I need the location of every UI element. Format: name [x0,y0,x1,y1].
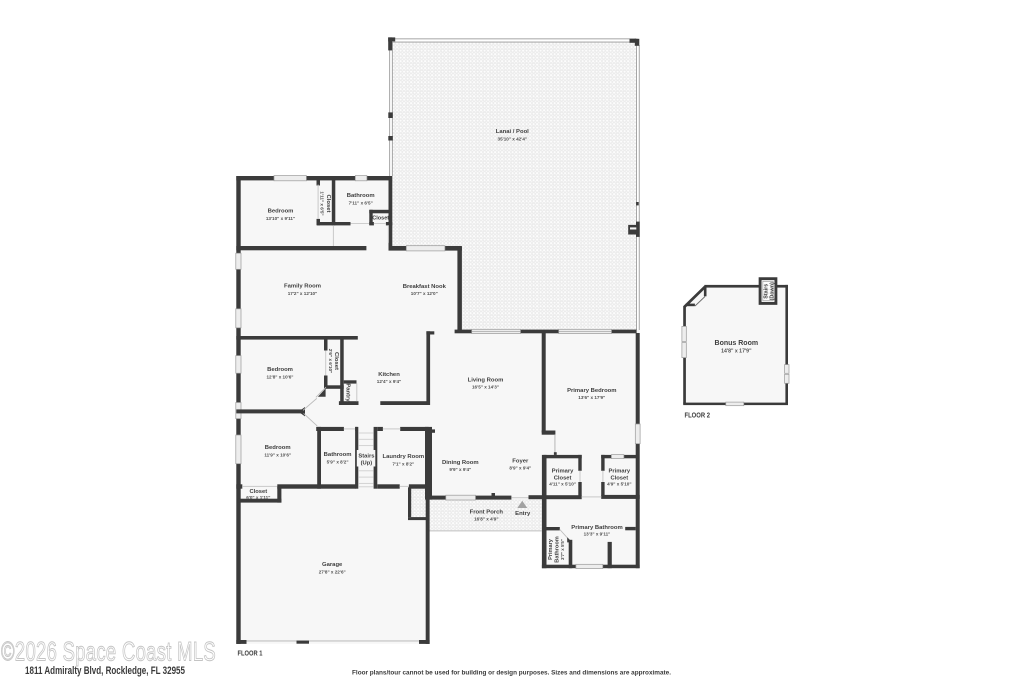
svg-text:Living Room: Living Room [468,377,504,383]
svg-text:Garage: Garage [322,562,343,568]
svg-text:Closet: Closet [610,475,628,481]
svg-text:Floor plans/tour cannot be use: Floor plans/tour cannot be used for buil… [352,670,671,677]
svg-text:17'2" x 12'10": 17'2" x 12'10" [288,291,318,296]
svg-text:7'1" x 8'2": 7'1" x 8'2" [392,461,414,466]
svg-text:Bedroom: Bedroom [267,367,293,373]
svg-text:Kitchen: Kitchen [378,372,400,378]
svg-text:27'8" x 22'6": 27'8" x 22'6" [319,569,346,574]
svg-text:7'11" x 6'5": 7'11" x 6'5" [349,200,373,205]
svg-text:3'7" x 5'5": 3'7" x 5'5" [560,539,565,560]
svg-text:Bedroom: Bedroom [265,445,291,451]
svg-text:Laundry Room: Laundry Room [383,454,425,460]
svg-text:Bathroom: Bathroom [324,452,352,458]
svg-text:Primary: Primary [548,538,554,560]
svg-text:5'9" x 8'2": 5'9" x 8'2" [327,459,349,464]
svg-text:FLOOR 1: FLOOR 1 [238,648,264,657]
svg-text:(Up): (Up) [361,461,373,467]
svg-text:11'9" x 10'6": 11'9" x 10'6" [264,452,291,457]
svg-text:Family Room: Family Room [284,284,321,290]
svg-text:16'5" x 14'3": 16'5" x 14'3" [472,385,499,390]
svg-text:4'11" x 5'10": 4'11" x 5'10" [549,482,576,487]
svg-text:13'6" x 17'9": 13'6" x 17'9" [578,395,605,400]
svg-text:Closet: Closet [333,352,339,370]
svg-text:16'8" x 4'9": 16'8" x 4'9" [474,516,498,521]
svg-text:Closet: Closet [554,475,572,481]
svg-text:Stairs: Stairs [763,284,769,299]
svg-text:12'8" x 10'6": 12'8" x 10'6" [267,374,294,379]
svg-text:Primary: Primary [552,468,574,474]
svg-text:Breakfast Nook: Breakfast Nook [403,284,447,290]
svg-text:Foyer: Foyer [512,459,529,465]
svg-text:Dining Room: Dining Room [442,460,479,466]
svg-text:Entry: Entry [515,511,531,517]
svg-text:Bedroom: Bedroom [268,209,294,215]
svg-text:13'3" x 9'11": 13'3" x 9'11" [584,532,611,537]
svg-text:2'6" x 6'10": 2'6" x 6'10" [328,349,333,373]
svg-text:1'11" x 6'5": 1'11" x 6'5" [320,191,325,215]
svg-text:FLOOR 2: FLOOR 2 [685,411,711,420]
svg-text:Closet: Closet [325,194,331,212]
svg-text:12'4" x 9'4": 12'4" x 9'4" [377,379,401,384]
svg-text:Closet: Closet [372,215,389,221]
svg-text:Primary Bathroom: Primary Bathroom [571,525,622,531]
svg-text:1811 Admiralty Blvd, Rockledge: 1811 Admiralty Blvd, Rockledge, FL 32955 [25,665,185,677]
svg-text:13'10" x 9'11": 13'10" x 9'11" [266,216,295,221]
svg-text:Stairs: Stairs [358,454,374,460]
svg-text:(Down): (Down) [770,282,776,300]
svg-text:Bonus Room: Bonus Room [715,340,759,347]
svg-text:Lanai / Pool: Lanai / Pool [496,129,529,135]
svg-text:©2026 Space Coast MLS: ©2026 Space Coast MLS [1,637,216,667]
svg-text:Pantry: Pantry [345,383,351,402]
svg-text:Primary: Primary [609,468,631,474]
svg-text:Bathroom: Bathroom [347,193,375,199]
svg-text:9'9" x 9'4": 9'9" x 9'4" [449,467,471,472]
svg-text:35'10" x 42'4": 35'10" x 42'4" [498,136,528,141]
svg-text:8'9" x 9'4": 8'9" x 9'4" [509,466,531,471]
svg-text:Front Porch: Front Porch [470,510,504,516]
svg-text:6'0" x 1'11": 6'0" x 1'11" [246,495,270,500]
svg-text:Primary Bedroom: Primary Bedroom [567,388,616,394]
svg-text:4'9" x 5'10": 4'9" x 5'10" [607,482,631,487]
svg-text:10'7" x 12'0": 10'7" x 12'0" [411,291,438,296]
svg-text:14'8" x 17'9": 14'8" x 17'9" [721,348,752,354]
